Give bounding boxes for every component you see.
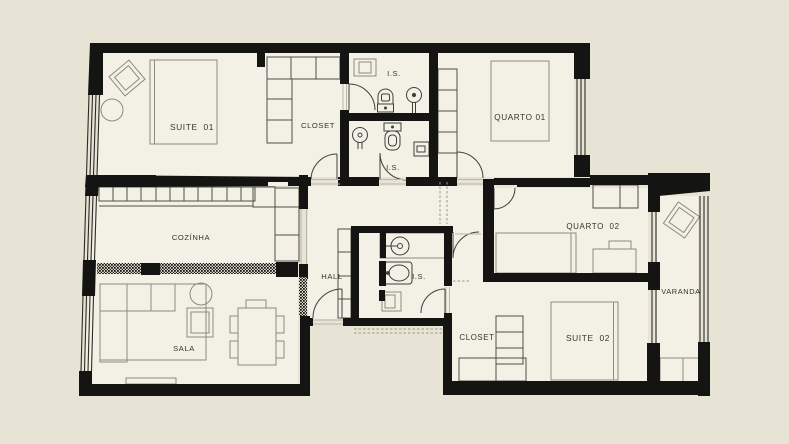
svg-text:CLOSET: CLOSET [301,121,335,130]
svg-text:QUARTO 02: QUARTO 02 [566,222,619,231]
svg-text:HALL: HALL [321,272,342,281]
svg-text:SUITE 02: SUITE 02 [566,333,610,343]
svg-text:COZÍNHA: COZÍNHA [172,233,211,242]
svg-text:CLOSET: CLOSET [459,333,494,342]
svg-text:I.S.: I.S. [386,163,400,172]
svg-text:SUITE 01: SUITE 01 [170,122,214,132]
svg-text:SALA: SALA [173,344,195,353]
svg-text:I.S.: I.S. [387,69,401,78]
svg-text:QUARTO 01: QUARTO 01 [494,113,546,122]
svg-text:VARANDA: VARANDA [661,287,700,296]
svg-text:I.S.: I.S. [412,272,426,281]
